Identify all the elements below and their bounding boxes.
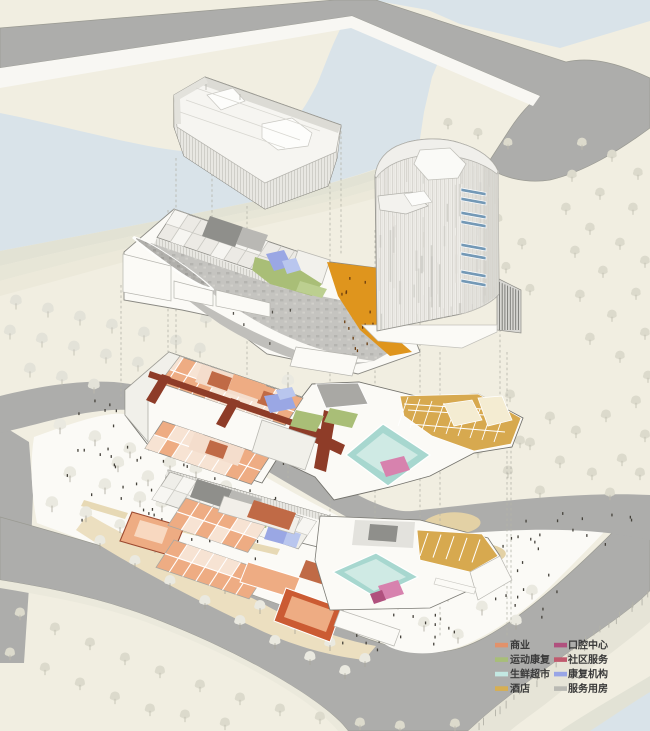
- svg-text:社区服务: 社区服务: [567, 653, 609, 666]
- svg-text:运动康复: 运动康复: [510, 653, 551, 666]
- svg-text:生鲜超市: 生鲜超市: [510, 668, 550, 681]
- svg-text:酒店: 酒店: [510, 682, 530, 695]
- svg-text:服务用房: 服务用房: [568, 682, 608, 695]
- svg-text:口腔中心: 口腔中心: [568, 639, 608, 652]
- svg-text:康复机构: 康复机构: [568, 668, 608, 681]
- svg-text:商业: 商业: [510, 639, 530, 652]
